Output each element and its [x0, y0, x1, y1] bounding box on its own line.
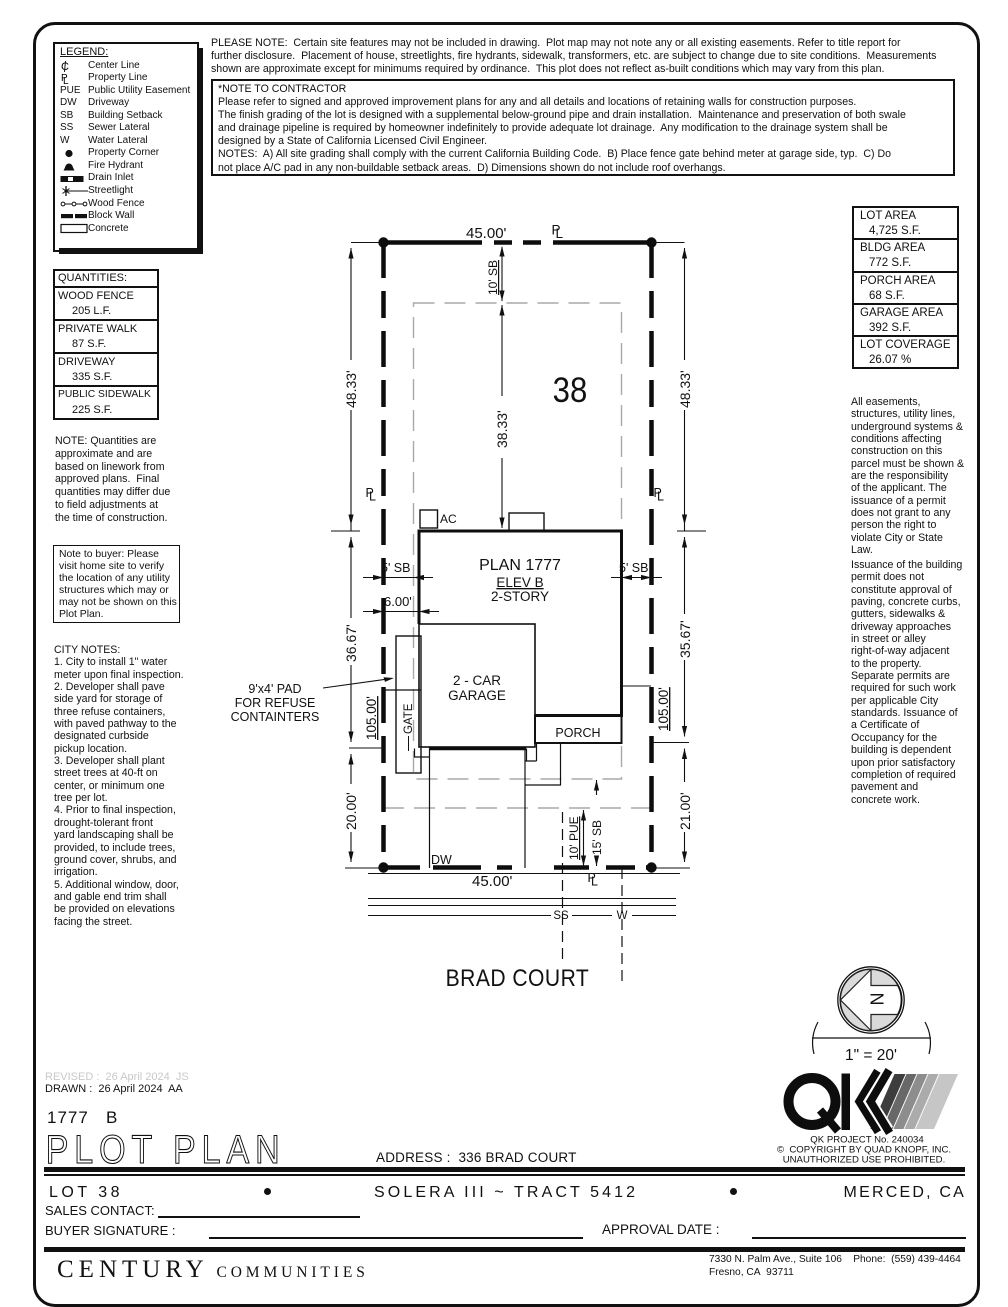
svg-text:N: N	[867, 993, 887, 1006]
svg-text:GARAGE: GARAGE	[448, 688, 506, 703]
svg-text:6.00': 6.00'	[384, 594, 412, 609]
svg-text:38.33': 38.33'	[494, 410, 510, 448]
svg-text:45.00': 45.00'	[472, 873, 513, 890]
svg-text:L: L	[591, 875, 598, 889]
svg-text:GATE: GATE	[403, 703, 415, 734]
svg-text:38: 38	[553, 371, 588, 410]
svg-text:SS: SS	[553, 910, 569, 922]
svg-text:W: W	[617, 910, 628, 922]
svg-text:2-STORY: 2-STORY	[491, 589, 549, 604]
svg-text:DW: DW	[431, 853, 452, 867]
svg-text:BRAD COURT: BRAD COURT	[446, 965, 590, 992]
svg-text:48.33': 48.33'	[343, 370, 359, 408]
svg-text:5' SB: 5' SB	[619, 561, 649, 575]
svg-text:10' PUE: 10' PUE	[567, 816, 581, 860]
svg-text:L: L	[369, 490, 376, 504]
svg-text:36.67': 36.67'	[343, 624, 359, 662]
svg-text:L: L	[657, 490, 664, 504]
svg-text:AC: AC	[440, 512, 457, 526]
svg-text:105.00': 105.00'	[656, 687, 671, 731]
svg-text:35.67': 35.67'	[677, 620, 693, 658]
svg-text:48.33': 48.33'	[677, 370, 693, 408]
svg-text:15' SB: 15' SB	[590, 820, 604, 855]
svg-text:2 - CAR: 2 - CAR	[453, 673, 501, 688]
svg-text:10' SB: 10' SB	[486, 260, 500, 295]
svg-text:20.00': 20.00'	[343, 792, 359, 830]
svg-text:UNAUTHORIZED USE PROHIBITED.: UNAUTHORIZED USE PROHIBITED.	[783, 1155, 946, 1166]
svg-text:5' SB: 5' SB	[381, 561, 411, 575]
svg-text:45.00': 45.00'	[466, 225, 507, 242]
svg-text:PLAN 1777: PLAN 1777	[479, 557, 561, 574]
svg-text:105.00': 105.00'	[364, 696, 379, 740]
svg-text:L: L	[556, 226, 564, 241]
svg-text:21.00': 21.00'	[677, 792, 693, 830]
svg-text:PLOT PLAN: PLOT PLAN	[46, 1126, 286, 1171]
svg-text:ELEV B: ELEV B	[496, 575, 543, 590]
svg-text:PORCH: PORCH	[555, 726, 600, 740]
svg-text:1" = 20': 1" = 20'	[845, 1047, 897, 1064]
